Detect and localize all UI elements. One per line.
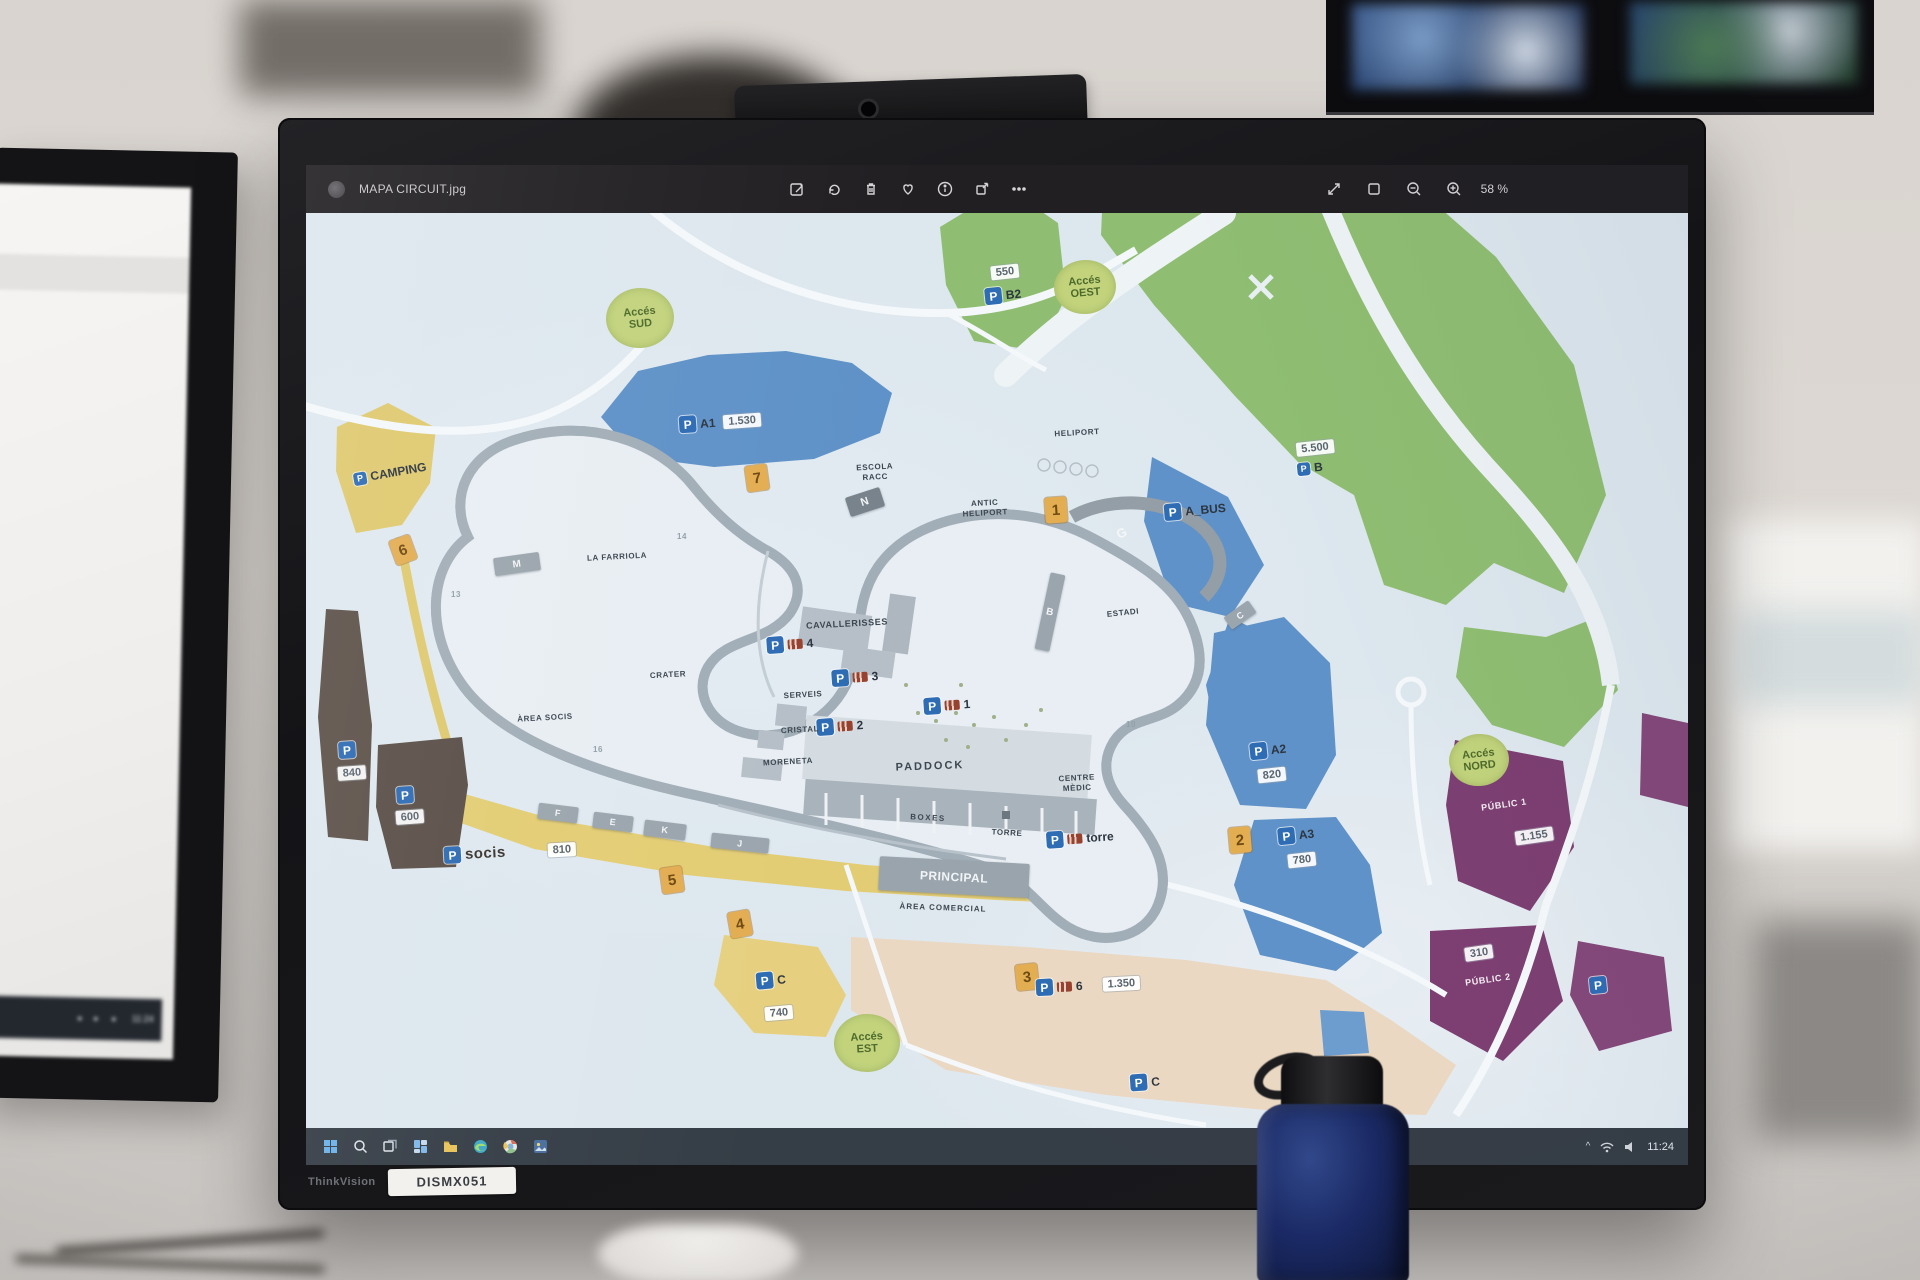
parking-badge-3: P3 (831, 667, 879, 687)
photos-icon[interactable] (532, 1138, 549, 1155)
file-explorer-icon[interactable] (442, 1138, 459, 1155)
map-graphics (306, 165, 1688, 1165)
map-label-torre: TORRE (991, 827, 1022, 838)
gate-4: 4 (727, 909, 753, 938)
count-badge-600: 600 (395, 809, 424, 825)
parking-badge-p: P (1589, 976, 1608, 995)
parking-badge-c: PC (1130, 1072, 1161, 1091)
search-icon[interactable] (352, 1138, 369, 1155)
parking-badge-4: P4 (766, 634, 814, 654)
fullscreen-icon[interactable] (1321, 176, 1347, 202)
edge-icon[interactable] (472, 1138, 489, 1155)
background-blur (1735, 610, 1920, 705)
windows-taskbar: ^ 11:24 (306, 1128, 1688, 1165)
share-icon[interactable] (969, 176, 995, 202)
zoom-in-icon[interactable] (1441, 176, 1467, 202)
photo-of-desk: 11:24 ThinkVision DISMX051 (0, 0, 1920, 1280)
secondary-screen: 11:24 (0, 184, 191, 1060)
circuit-map: AccésSUDAccésOESTAccésNORDAccésEST123456… (306, 165, 1688, 1165)
parking-badge-b: PB (1297, 460, 1324, 477)
map-label-escola-racc: ESCOLARACC (856, 461, 894, 482)
gate-1: 1 (1044, 496, 1068, 523)
app-icon[interactable] (328, 181, 345, 198)
start-icon[interactable] (322, 1138, 339, 1155)
tv-video-feed (1352, 4, 1584, 90)
gate-5: 5 (659, 866, 684, 895)
count-badge-820: 820 (1257, 767, 1287, 784)
cup (598, 1224, 798, 1280)
tray-caret[interactable]: ^ (1586, 1141, 1591, 1152)
map-label-16: 16 (593, 745, 603, 755)
fit-to-window-icon[interactable] (1361, 176, 1387, 202)
map-label-boxes: BOXES (910, 812, 946, 823)
photos-titlebar: MAPA CIRCUIT.jpg 58 % (306, 165, 1688, 213)
map-label-crater: CRATER (650, 669, 687, 680)
volume-icon[interactable] (1624, 1141, 1637, 1153)
map-label-serveis: SERVEIS (783, 689, 822, 701)
map-label-13: 13 (451, 590, 461, 600)
delete-icon[interactable] (858, 176, 884, 202)
secondary-content (0, 254, 190, 294)
map-label-cristal: CRISTAL (781, 724, 820, 736)
map-label-paddock: PADDOCK (895, 759, 964, 775)
tv-video-feed (1630, 2, 1858, 84)
main-screen: AccésSUDAccésOESTAccésNORDAccésEST123456… (306, 165, 1688, 1165)
gate-7: 7 (744, 464, 769, 493)
camera-lens-icon (861, 101, 877, 117)
taskbar-icons (74, 1013, 126, 1024)
clock: 11:24 (132, 1015, 154, 1025)
more-icon[interactable] (1006, 176, 1032, 202)
secondary-taskbar: 11:24 (0, 996, 162, 1042)
zoom-level[interactable]: 58 % (1481, 182, 1508, 196)
water-bottle (1225, 1056, 1440, 1280)
count-badge-840: 840 (337, 765, 366, 781)
edit-icon[interactable] (784, 176, 810, 202)
widgets-icon[interactable] (412, 1138, 429, 1155)
map-label-10: 10 (1126, 720, 1136, 730)
zoom-out-icon[interactable] (1401, 176, 1427, 202)
clock[interactable]: 11:24 (1647, 1141, 1674, 1153)
asset-tag-sticker: DISMX051 (388, 1167, 516, 1196)
map-label-antic-heliport: ANTICHELIPORT (962, 497, 1008, 519)
map-label-14: 14 (677, 532, 687, 542)
count-badge-740: 740 (764, 1005, 793, 1021)
wifi-icon[interactable] (1600, 1141, 1614, 1153)
chrome-icon[interactable] (502, 1138, 519, 1155)
favorite-icon[interactable] (895, 176, 921, 202)
rotate-icon[interactable] (821, 176, 847, 202)
info-icon[interactable] (932, 176, 958, 202)
background-blur (240, 0, 540, 95)
filename: MAPA CIRCUIT.jpg (359, 182, 466, 196)
background-blur (1755, 920, 1920, 1140)
parking-badge-2: P2 (816, 716, 864, 736)
wall-tv (1326, 0, 1874, 115)
parking-badge-1: P1 (923, 695, 971, 715)
parking-badge-p: P (338, 741, 356, 759)
bottle-body (1257, 1104, 1409, 1280)
map-label-centre-m-dic: CENTREMÈDIC (1058, 772, 1095, 793)
secondary-monitor: 11:24 (0, 148, 238, 1103)
task-view-icon[interactable] (382, 1138, 399, 1155)
gate-2: 2 (1228, 826, 1252, 854)
parking-badge-p: P (396, 786, 414, 804)
count-badge-550: 550 (990, 264, 1020, 281)
count-badge-780: 780 (1287, 852, 1317, 869)
parking-badge-c: PC (755, 970, 786, 990)
monitor-brand: ThinkVision (308, 1176, 376, 1188)
